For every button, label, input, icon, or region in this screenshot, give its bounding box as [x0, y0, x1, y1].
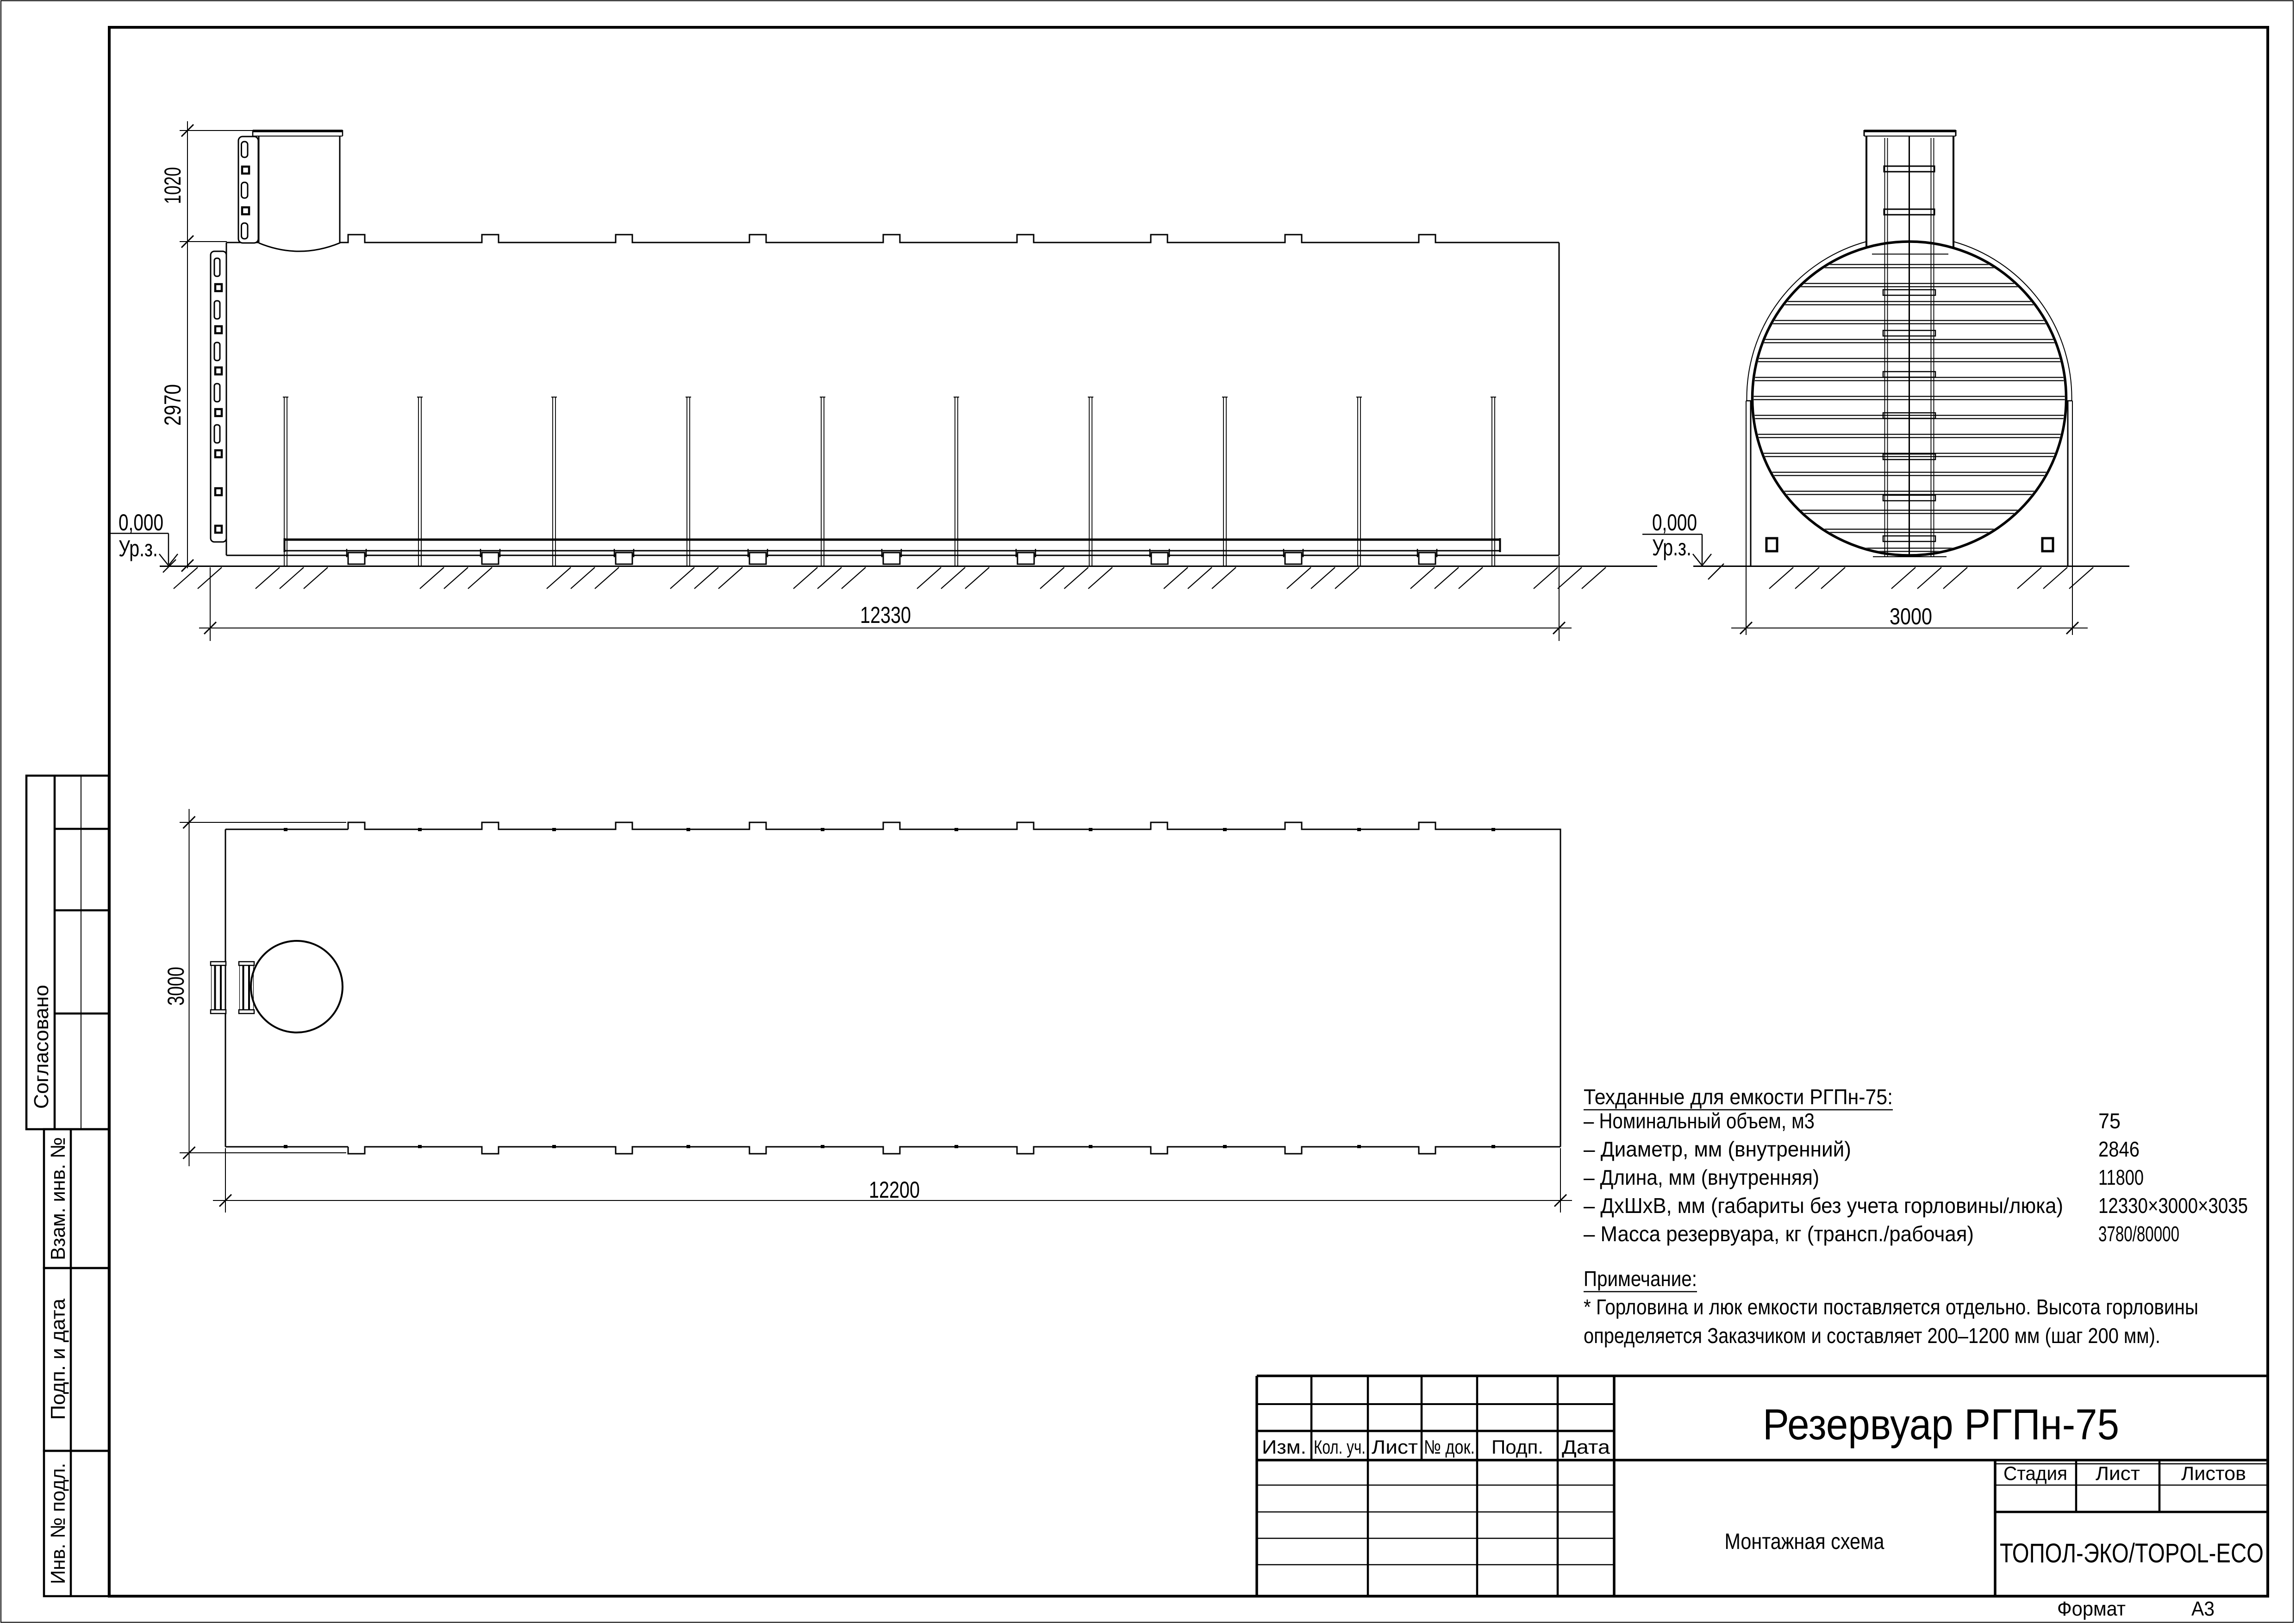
- svg-text:Резервуар РГПн-75: Резервуар РГПн-75: [1763, 1400, 2119, 1449]
- svg-text:– Диаметр, мм (внутренний): – Диаметр, мм (внутренний): [1584, 1137, 1851, 1161]
- svg-text:Лист: Лист: [1372, 1436, 1418, 1458]
- svg-text:– ДхШхВ, мм (габариты без учет: – ДхШхВ, мм (габариты без учета горловин…: [1584, 1194, 2063, 1218]
- svg-text:ТОПОЛ-ЭКО/TOPOL-ECO: ТОПОЛ-ЭКО/TOPOL-ECO: [2000, 1538, 2264, 1568]
- svg-text:Взам. инв. №: Взам. инв. №: [47, 1137, 69, 1260]
- svg-text:0,000: 0,000: [1652, 510, 1697, 535]
- svg-text:Кол. уч.: Кол. уч.: [1314, 1436, 1366, 1458]
- svg-text:2846: 2846: [2098, 1137, 2140, 1161]
- svg-text:Примечание:: Примечание:: [1584, 1267, 1697, 1291]
- svg-text:Изм.: Изм.: [1262, 1436, 1306, 1458]
- svg-text:0,000: 0,000: [119, 510, 163, 535]
- svg-text:Ур.з.: Ур.з.: [1652, 535, 1691, 560]
- svg-text:определяется Заказчиком и сост: определяется Заказчиком и составляет 200…: [1584, 1324, 2160, 1348]
- svg-text:Стадия: Стадия: [2003, 1462, 2067, 1484]
- svg-text:А3: А3: [2191, 1598, 2215, 1620]
- svg-text:Техданные для емкости РГПн-75:: Техданные для емкости РГПн-75:: [1584, 1085, 1893, 1109]
- svg-text:Подп. и дата: Подп. и дата: [47, 1298, 69, 1420]
- svg-text:3000: 3000: [163, 967, 189, 1006]
- svg-text:Подп.: Подп.: [1491, 1436, 1543, 1458]
- svg-text:1020: 1020: [160, 167, 186, 204]
- svg-text:3780/80000: 3780/80000: [2098, 1222, 2179, 1246]
- svg-text:Лист: Лист: [2096, 1462, 2140, 1484]
- svg-text:Листов: Листов: [2181, 1462, 2246, 1484]
- svg-text:№ док.: № док.: [1424, 1436, 1475, 1458]
- svg-text:11800: 11800: [2098, 1165, 2144, 1189]
- svg-text:* Горловина и люк емкости пост: * Горловина и люк емкости поставляется о…: [1584, 1295, 2198, 1319]
- svg-text:12330×3000×3035: 12330×3000×3035: [2098, 1194, 2248, 1218]
- svg-text:Монтажная схема: Монтажная схема: [1725, 1530, 1884, 1554]
- svg-text:– Масса резервуара, кг (трансп: – Масса резервуара, кг (трансп./рабочая): [1584, 1222, 1974, 1246]
- svg-text:12330: 12330: [860, 602, 911, 628]
- svg-text:Дата: Дата: [1562, 1436, 1610, 1458]
- svg-text:Ур.з.: Ур.з.: [119, 535, 158, 561]
- svg-text:– Номинальный объем, м3: – Номинальный объем, м3: [1584, 1109, 1815, 1133]
- svg-text:75: 75: [2098, 1109, 2121, 1133]
- svg-text:Инв. № подл.: Инв. № подл.: [47, 1463, 69, 1584]
- svg-text:Согласовано: Согласовано: [30, 985, 53, 1109]
- svg-text:3000: 3000: [1890, 603, 1932, 629]
- svg-text:Формат: Формат: [2057, 1598, 2126, 1620]
- svg-text:2970: 2970: [160, 384, 186, 426]
- svg-text:12200: 12200: [869, 1177, 920, 1203]
- svg-text:– Длина, мм (внутренняя): – Длина, мм (внутренняя): [1584, 1165, 1819, 1189]
